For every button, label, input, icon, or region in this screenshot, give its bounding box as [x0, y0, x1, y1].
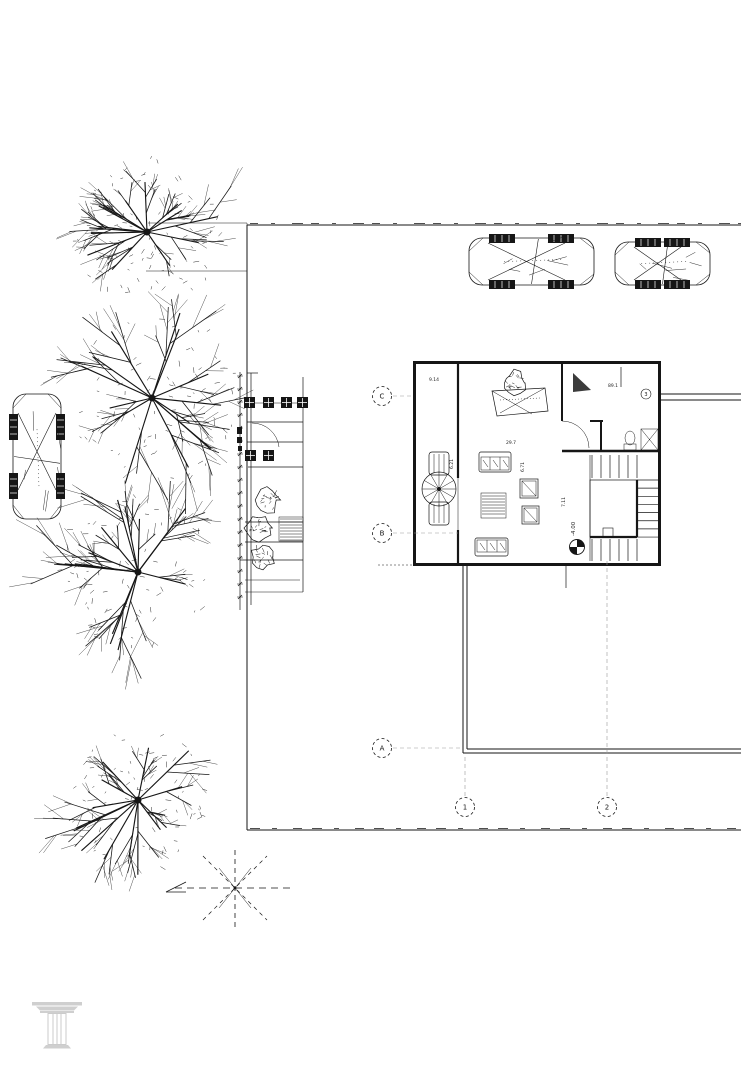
svg-text:9.14: 9.14: [429, 377, 439, 383]
bush-symbol: [255, 487, 280, 514]
bathroom: [562, 363, 659, 451]
door-tag: 3: [641, 389, 651, 399]
svg-text:A: A: [380, 745, 385, 753]
tree-symbol: [41, 292, 254, 528]
site-boundary: [247, 224, 741, 831]
site-plan-canvas: CBA123-4.009.1429.76.216.717.1189.1 ARH2…: [0, 0, 741, 1080]
tree-symbol: [34, 734, 217, 891]
tree-symbol: [56, 156, 242, 293]
veranda-chair-1: [429, 452, 449, 475]
furniture: [422, 388, 548, 556]
bush-symbol: [251, 545, 274, 570]
sofa-top: [479, 452, 511, 472]
grid-bubble: A: [373, 739, 463, 758]
bench-outline: [279, 517, 303, 541]
tree-symbol: [9, 478, 221, 690]
staircase: [590, 455, 660, 561]
logo: ARH2TARH ® ALL RIGHT RESERVED: [0, 998, 300, 1058]
rug: [481, 493, 506, 518]
svg-text:B: B: [380, 530, 385, 538]
level-marker: -4.00: [570, 521, 585, 554]
compass-rose: [166, 850, 292, 927]
svg-text:7.11: 7.11: [561, 497, 567, 507]
deck-door-arc: [252, 423, 279, 447]
exterior-wall-right: [661, 394, 741, 400]
toilet: [625, 431, 635, 445]
grid-bubble: 2: [598, 560, 617, 817]
svg-text:89.1: 89.1: [608, 383, 618, 389]
driveway-entrance-lines: [146, 223, 247, 271]
svg-text:3: 3: [644, 392, 647, 398]
svg-text:2: 2: [605, 804, 609, 812]
sofa-bottom: [475, 538, 508, 556]
svg-text:6.21: 6.21: [449, 459, 455, 469]
car-symbol: [469, 234, 594, 289]
floor-plan-drawing: CBA123-4.009.1429.76.216.717.1189.1: [0, 0, 741, 1080]
planter-square: [245, 450, 256, 461]
car-symbol: [9, 394, 65, 519]
planter-square: [297, 397, 308, 408]
parasol-table: [422, 472, 456, 506]
door-swing-arc: [562, 421, 589, 448]
grid-bubble: C: [373, 387, 415, 406]
svg-text:1: 1: [463, 804, 467, 812]
grid-bubble: 1: [456, 757, 475, 817]
planter-square: [263, 450, 274, 461]
svg-text:29.7: 29.7: [506, 440, 516, 446]
logo-column-icon: [0, 998, 300, 1058]
bush-symbol: [505, 369, 526, 396]
armchair-2: [522, 506, 539, 524]
svg-text:C: C: [380, 393, 385, 401]
courtyard-walls: [378, 565, 741, 753]
planter-square: [244, 397, 255, 408]
svg-text:-4.00: -4.00: [571, 521, 577, 536]
bench-stripes: [280, 519, 302, 540]
planter-square: [263, 397, 274, 408]
bush-symbol: [244, 517, 272, 543]
planter-square: [281, 397, 292, 408]
generated-symbols: CBA123-4.009.1429.76.216.717.1189.1: [9, 156, 710, 927]
car-symbol: [615, 238, 710, 289]
armchair-1: [520, 479, 538, 498]
svg-text:6.71: 6.71: [520, 462, 526, 472]
door-leaf: [573, 373, 591, 392]
grand-piano: [492, 388, 548, 416]
